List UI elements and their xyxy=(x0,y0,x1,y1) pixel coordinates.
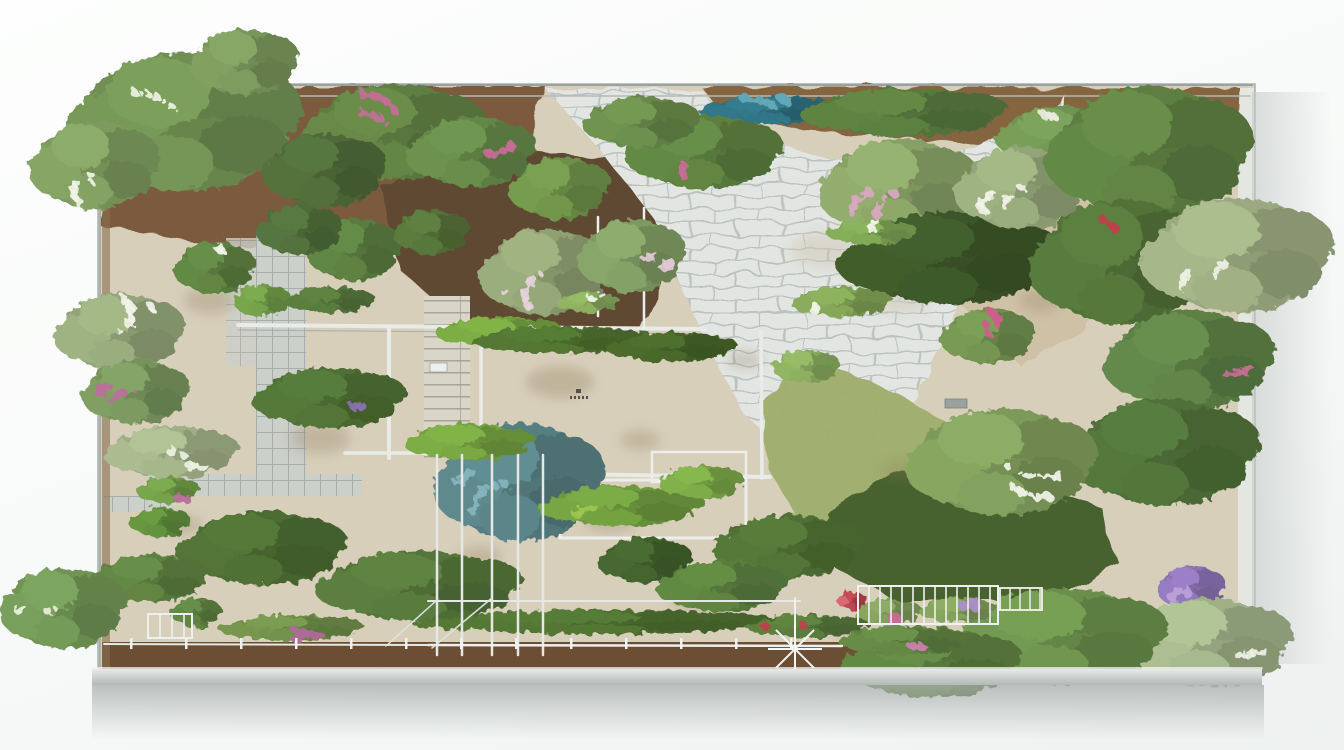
fence-rail-bottom xyxy=(428,645,842,646)
drain-grate xyxy=(945,399,967,408)
soil-stain xyxy=(620,430,660,450)
garden-plan-svg xyxy=(0,0,1344,750)
fence-rail-bottom-left xyxy=(104,644,430,645)
garden-bench xyxy=(430,363,447,372)
low-wall-f xyxy=(761,331,762,478)
soil-stain xyxy=(526,366,594,398)
board-shadow xyxy=(92,685,1264,739)
board-fascia xyxy=(92,669,1262,685)
right-outer-shade xyxy=(1252,92,1332,664)
frame-front xyxy=(92,668,1264,739)
soil-stain xyxy=(727,351,763,369)
garden-plan-page xyxy=(0,0,1344,750)
